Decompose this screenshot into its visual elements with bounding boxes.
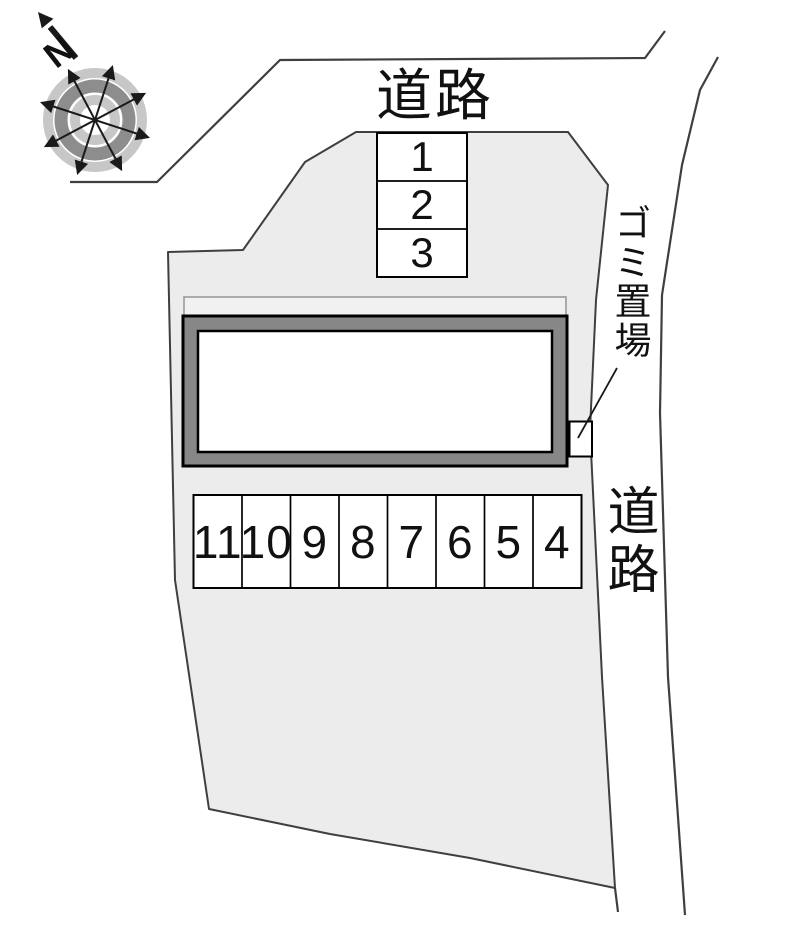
- stall-3: 3: [377, 229, 467, 277]
- stall-2: 2: [377, 181, 467, 229]
- right-road-inner-line-stub: [615, 888, 618, 912]
- stall-11: 11: [194, 495, 243, 588]
- top-road-label: 道路: [376, 68, 494, 124]
- right-road-label: 道路: [602, 484, 654, 600]
- stall-1: 1: [377, 133, 467, 181]
- garbage-box: [570, 422, 593, 457]
- stall-5: 5: [485, 495, 534, 588]
- garbage-area-label: ゴミ置場: [611, 204, 648, 360]
- stall-4: 4: [533, 495, 582, 588]
- stall-6: 6: [436, 495, 485, 588]
- site-plan-canvas: N 道路 道路 ゴミ置場 1 2 3 11 10 9 8 7 6 5 4: [0, 0, 800, 940]
- right-road-boundary-line: [660, 57, 718, 915]
- stall-10: 10: [242, 495, 291, 588]
- stall-7: 7: [388, 495, 437, 588]
- building-interior: [198, 331, 552, 452]
- stall-8: 8: [339, 495, 388, 588]
- stall-9: 9: [291, 495, 340, 588]
